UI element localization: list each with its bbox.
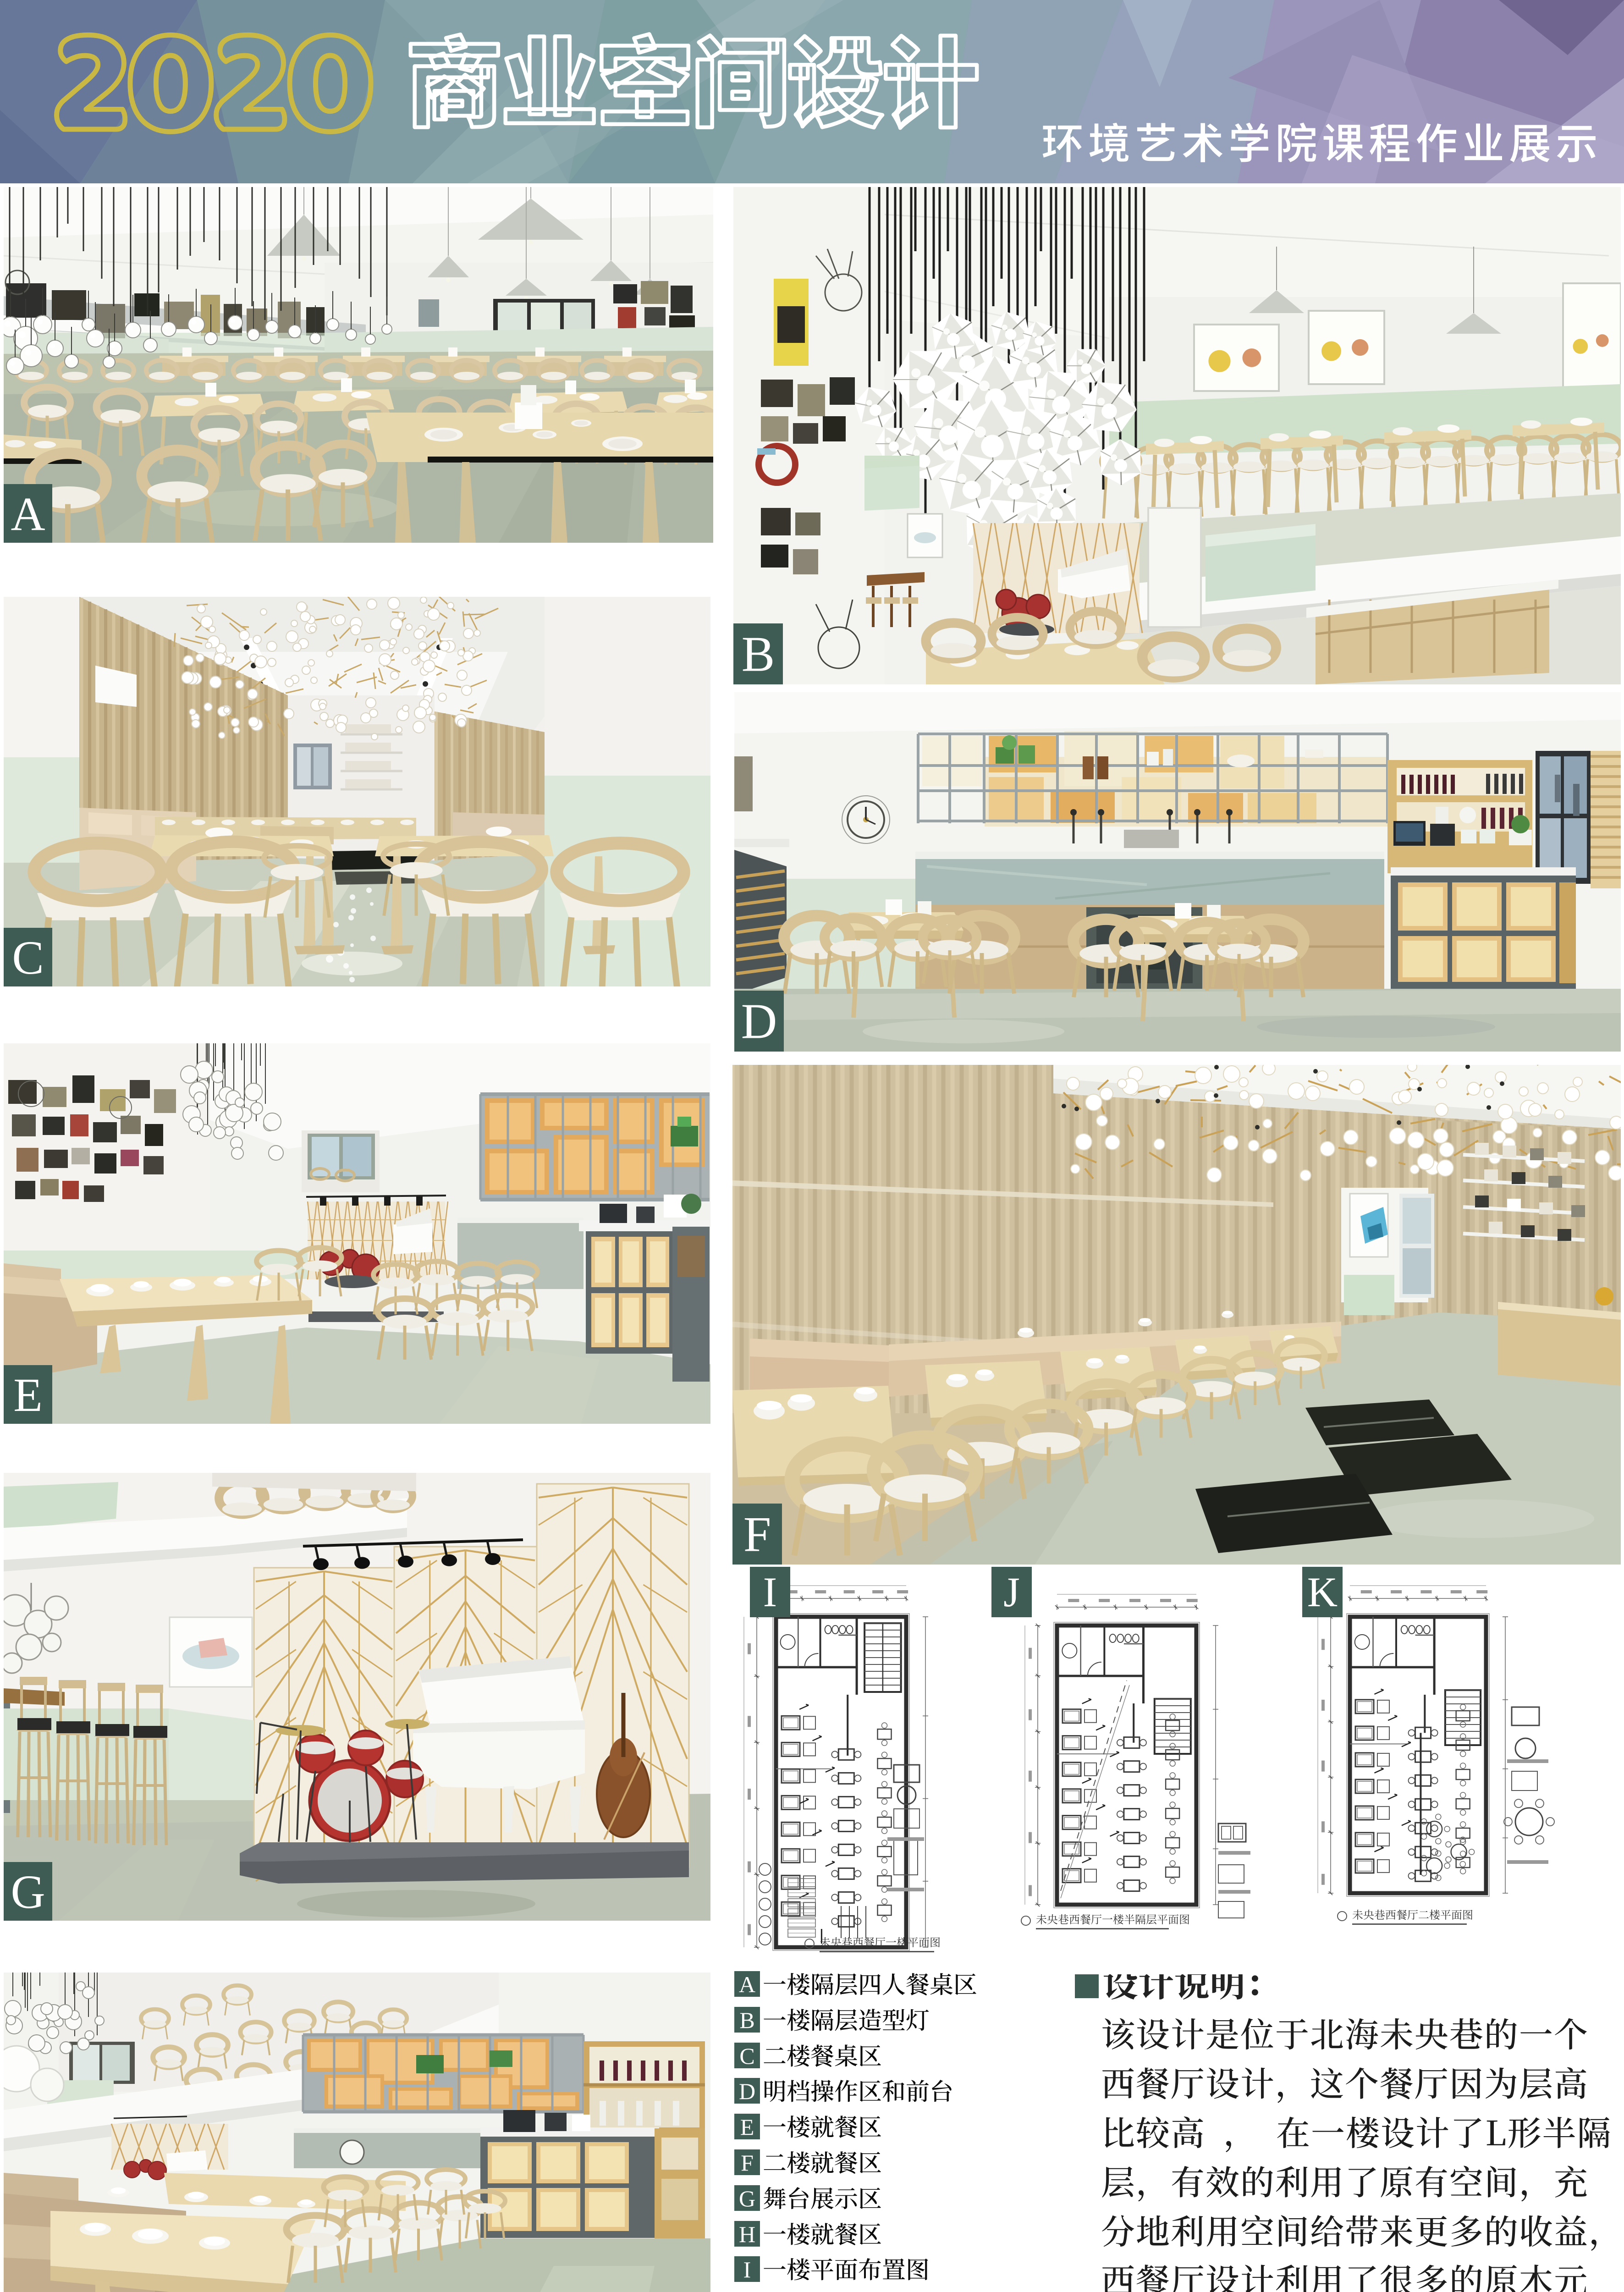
svg-text:E: E — [740, 2114, 754, 2140]
svg-text:H: H — [739, 2221, 755, 2247]
svg-text:G: G — [11, 1866, 45, 1918]
svg-text:A: A — [739, 1972, 755, 1997]
svg-text:J: J — [1003, 1569, 1020, 1615]
svg-text:A: A — [11, 488, 45, 540]
svg-text:K: K — [1307, 1569, 1338, 1615]
svg-text:F: F — [741, 2150, 754, 2176]
svg-text:G: G — [739, 2186, 755, 2211]
svg-text:F: F — [743, 1507, 771, 1562]
svg-text:C: C — [12, 931, 44, 984]
svg-text:B: B — [739, 2007, 754, 2033]
svg-text:C: C — [739, 2043, 754, 2069]
svg-text:B: B — [742, 627, 775, 682]
svg-text:E: E — [13, 1369, 43, 1421]
svg-text:I: I — [763, 1569, 777, 1615]
svg-text:I: I — [743, 2257, 751, 2282]
svg-text:D: D — [739, 2078, 755, 2104]
svg-text:D: D — [741, 994, 777, 1049]
